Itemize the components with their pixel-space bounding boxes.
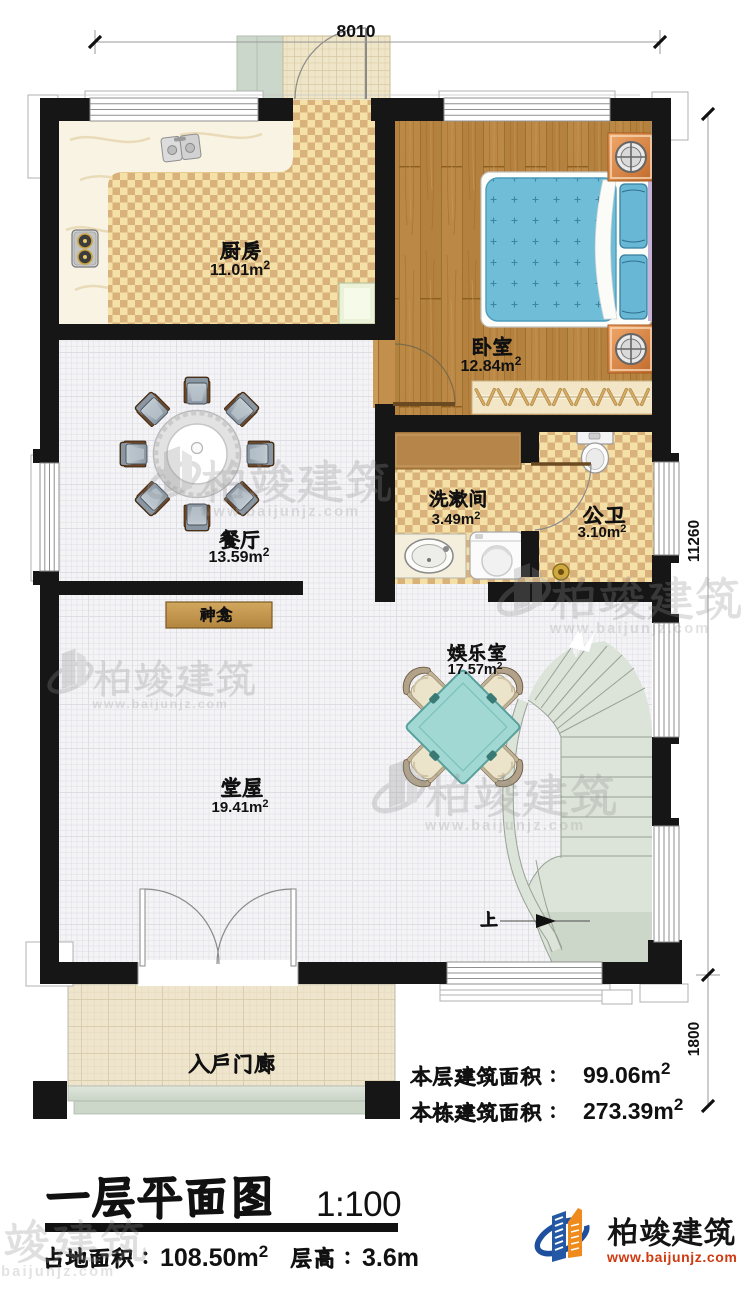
svg-text:17.57m2: 17.57m2 — [448, 661, 503, 678]
svg-text:www.baijunjz.com: www.baijunjz.com — [199, 504, 360, 520]
svg-text:12.84m2: 12.84m2 — [461, 354, 522, 375]
svg-text:www.baijunjz.com: www.baijunjz.com — [606, 1249, 737, 1265]
svg-text:13.59m2: 13.59m2 — [209, 545, 270, 566]
svg-text:8010: 8010 — [337, 21, 376, 41]
svg-text:www.baijunjz.com: www.baijunjz.com — [92, 697, 229, 711]
svg-text:99.06m2: 99.06m2 — [583, 1059, 670, 1088]
svg-text:3.6m: 3.6m — [362, 1244, 419, 1272]
svg-text:11260: 11260 — [686, 520, 703, 562]
svg-text:273.39m2: 273.39m2 — [583, 1095, 683, 1124]
svg-text:www.baijunjz.com: www.baijunjz.com — [549, 621, 710, 637]
svg-text:108.50m2: 108.50m2 — [160, 1242, 268, 1272]
svg-text:1:100: 1:100 — [316, 1185, 401, 1224]
svg-text:www.baijunjz.com: www.baijunjz.com — [0, 1264, 115, 1280]
svg-text:3.10m2: 3.10m2 — [578, 523, 627, 541]
svg-text:19.41m2: 19.41m2 — [212, 798, 269, 816]
svg-text:1800: 1800 — [686, 1022, 703, 1056]
svg-text:11.01m2: 11.01m2 — [210, 258, 270, 279]
svg-text:www.baijunjz.com: www.baijunjz.com — [424, 818, 585, 834]
svg-text:3.49m2: 3.49m2 — [432, 510, 481, 528]
